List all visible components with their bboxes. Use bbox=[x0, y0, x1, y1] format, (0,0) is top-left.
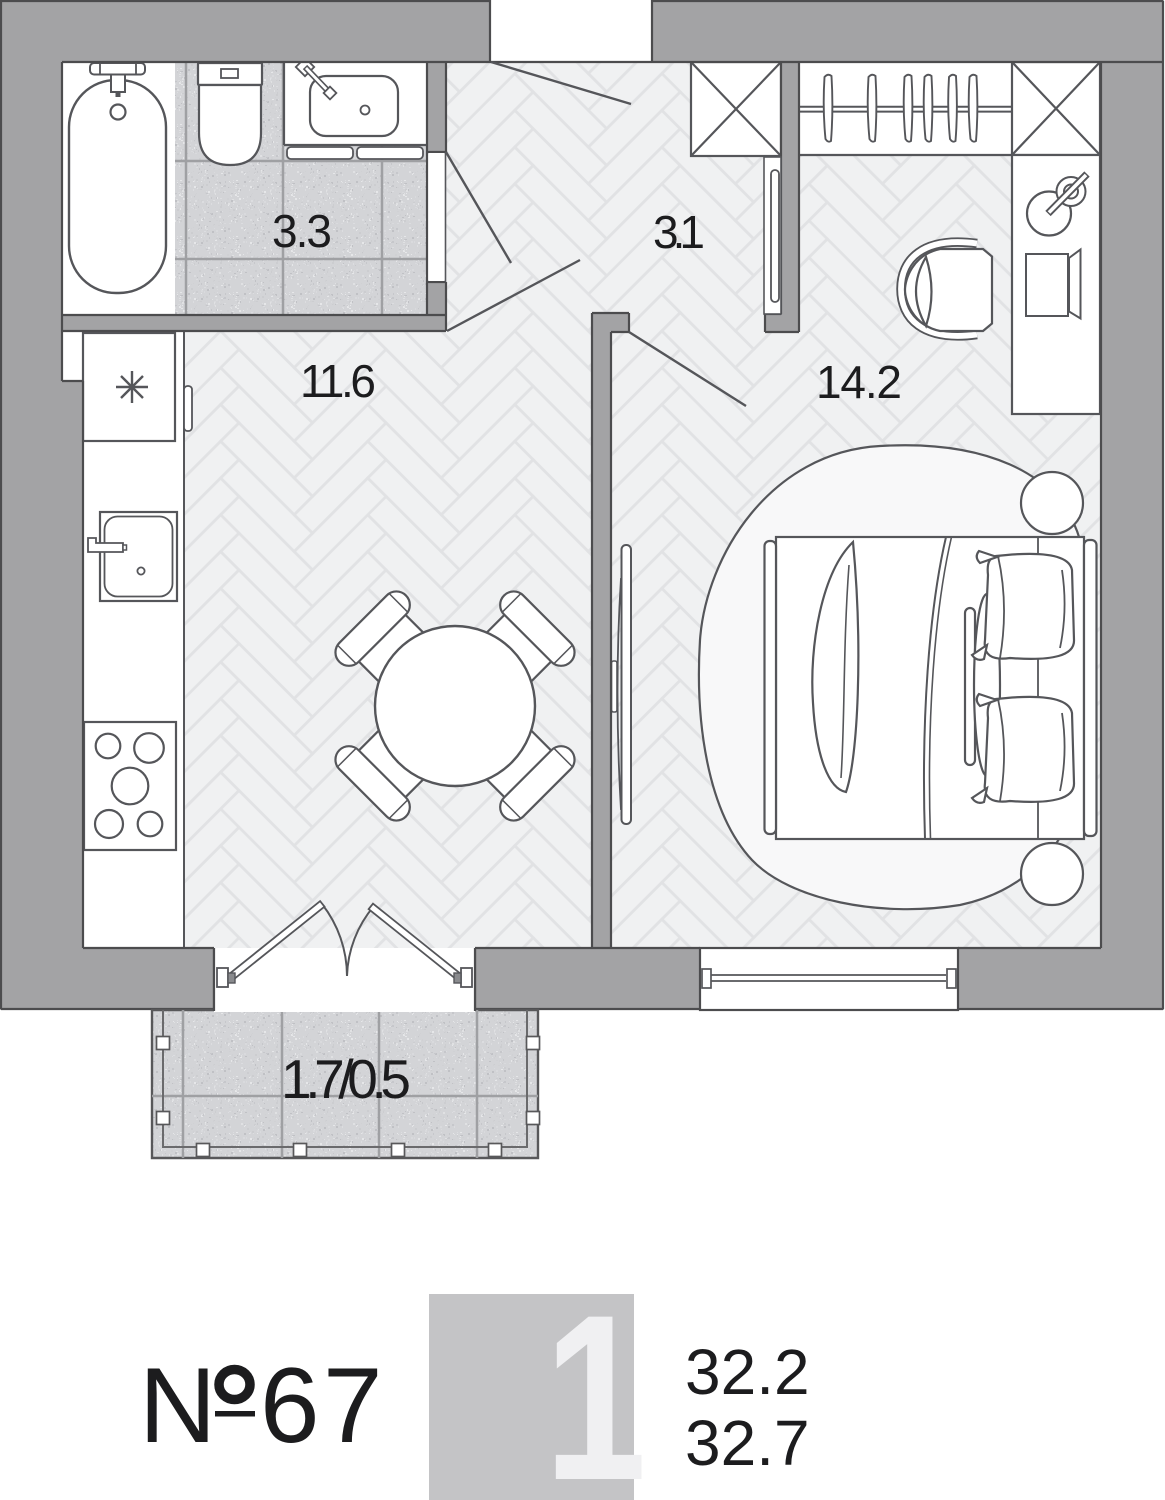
svg-text:3.3: 3.3 bbox=[272, 205, 332, 257]
svg-text:11.6: 11.6 bbox=[300, 355, 376, 407]
svg-text:3.1: 3.1 bbox=[653, 206, 705, 258]
svg-text:32.2: 32.2 bbox=[685, 1336, 810, 1408]
svg-text:32.7: 32.7 bbox=[685, 1407, 810, 1479]
svg-text:1.7/0.5: 1.7/0.5 bbox=[281, 1048, 411, 1110]
svg-text:67: 67 bbox=[260, 1345, 386, 1465]
svg-text:1: 1 bbox=[544, 1265, 646, 1500]
svg-text:N: N bbox=[139, 1345, 216, 1465]
svg-text:14.2: 14.2 bbox=[816, 356, 902, 408]
